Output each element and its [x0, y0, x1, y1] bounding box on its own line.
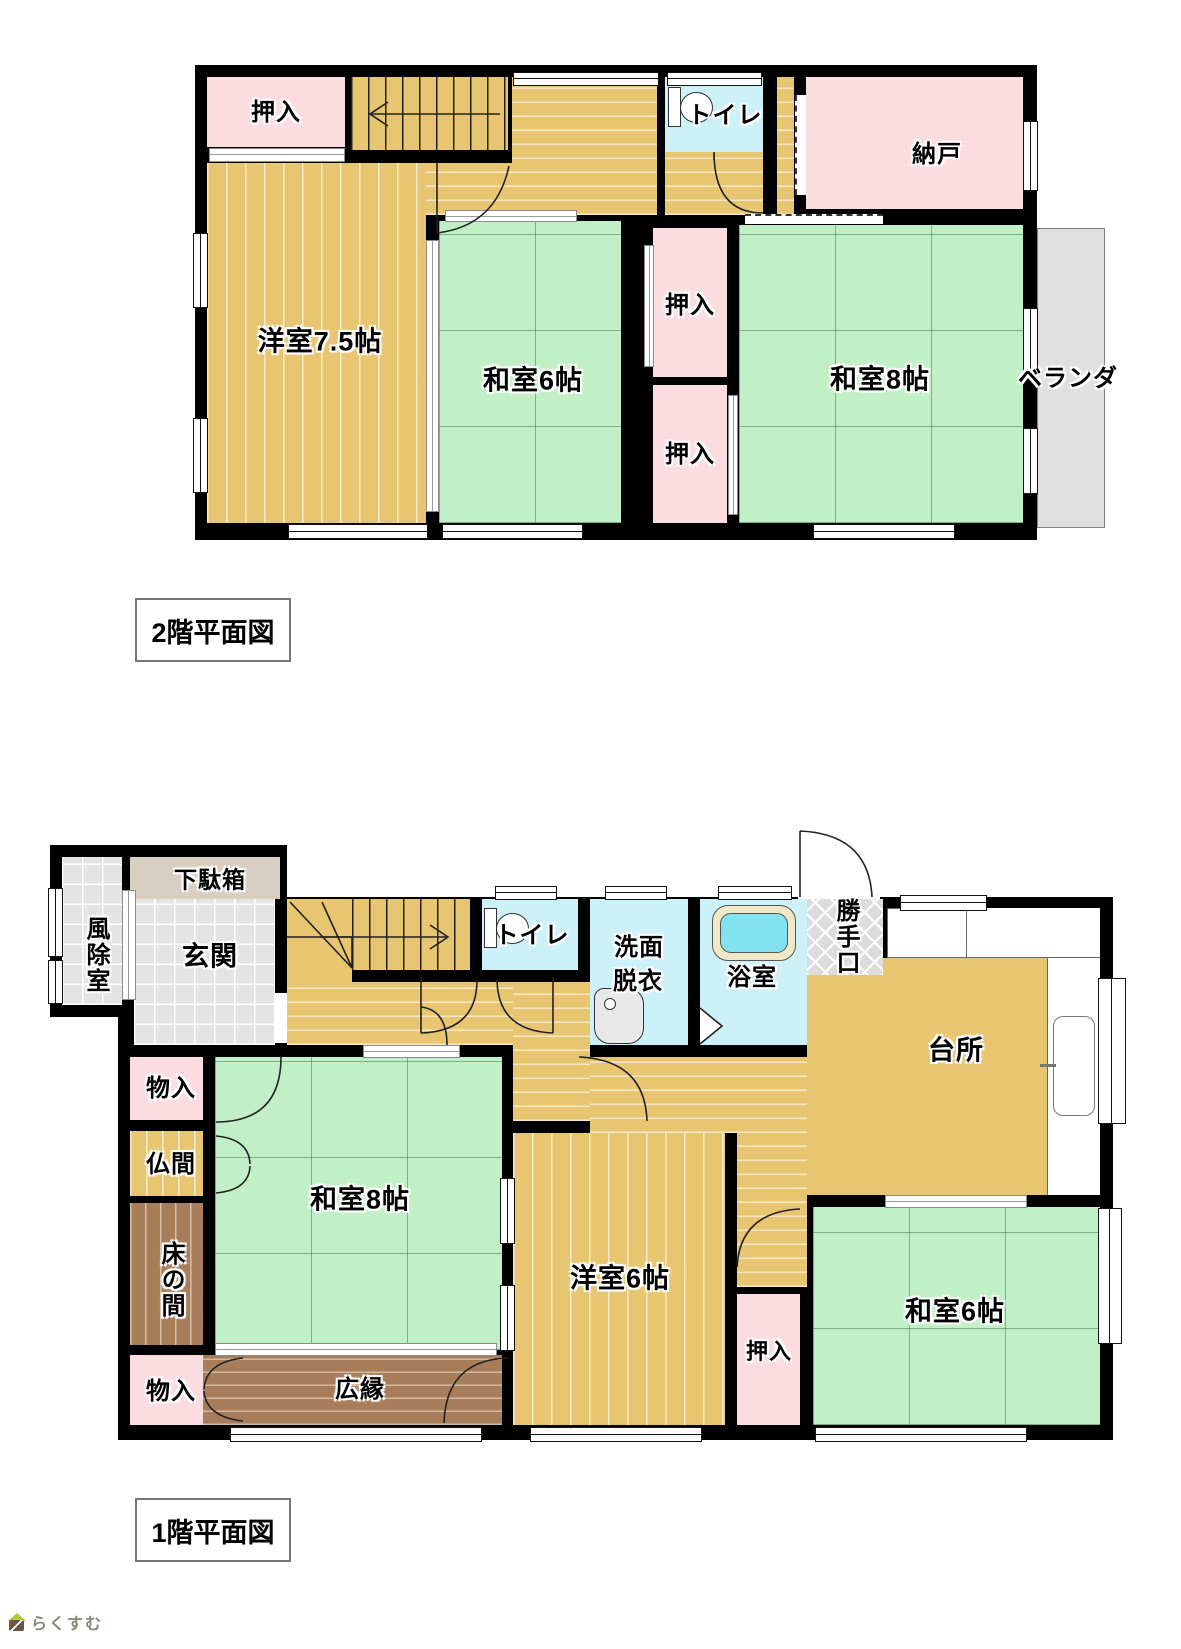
kitchen-white-top — [967, 908, 1100, 958]
rakusumu-logo: らくすむ — [8, 1610, 103, 1634]
floorplan-page: 押入 トイレ 納戸 洋室7.5帖 和室6帖 押入 押入 和室8帖 ベランダ 2階… — [0, 0, 1181, 1649]
room-label: 勝手口 — [833, 898, 857, 976]
room-label: 洋室7.5帖 — [258, 329, 383, 356]
stairs-2f — [351, 77, 508, 150]
window-senmen-top — [605, 886, 667, 900]
room-label: 物入 — [146, 1077, 196, 1101]
room-fill-daidokoro — [807, 975, 1047, 1195]
room-label: 玄関 — [182, 944, 238, 971]
slider-hiroen-top — [215, 1343, 497, 1356]
window-nando-right — [1023, 121, 1038, 191]
washbasin-drain-icon — [604, 998, 616, 1010]
opening-genkan-hall — [275, 993, 287, 1043]
door-dashed-nando — [795, 95, 806, 195]
window-kitchen-top — [900, 895, 987, 911]
slider-oshiire-mid-bottom — [728, 395, 738, 515]
room-label: 浴室 — [727, 966, 777, 990]
room-fill-daidokoro-strip — [883, 958, 1047, 975]
floor1-title-box: 1階平面図 — [135, 1498, 291, 1562]
room-label: 押入 — [746, 1341, 792, 1363]
room-fill-genkan — [134, 899, 275, 1045]
room-label: 洋室6帖 — [570, 1266, 670, 1293]
slider-washitsu8-top — [363, 1045, 460, 1058]
window-hiroen-bottom — [230, 1427, 482, 1442]
room-label: 納戸 — [912, 143, 962, 167]
floor1-title: 1階平面図 — [151, 1511, 274, 1550]
room-label: 和室8帖 — [830, 367, 930, 394]
bathtub-icon — [712, 905, 796, 961]
window-fujoshitsu-left-2 — [48, 960, 63, 1004]
room-label: トイレ — [688, 104, 763, 128]
hall-2f-c — [777, 77, 794, 215]
washbasin-icon — [594, 988, 644, 1044]
room-label: 押入 — [665, 294, 715, 318]
hall-1f-c — [590, 1057, 807, 1133]
window-2f-top-2 — [667, 72, 762, 86]
room-label: 和室8帖 — [310, 1187, 410, 1214]
window-toilet-1f-top — [495, 886, 557, 900]
window-2f-left-2 — [193, 418, 208, 493]
room-label: 洗面 — [614, 936, 664, 960]
window-washitsu8-right-2 — [1023, 428, 1038, 494]
partition-dashed-washitsu8-top — [745, 214, 883, 224]
window-2f-left-1 — [193, 233, 208, 308]
room-label: 風除室 — [83, 916, 107, 994]
stairs-1f-treads — [352, 899, 470, 970]
logo-text: らくすむ — [31, 1610, 103, 1634]
window-yoshitsu6-bottom — [530, 1427, 702, 1442]
floor2-title: 2階平面図 — [151, 611, 274, 650]
kitchen-counter-top — [887, 908, 967, 958]
room-label: 和室6帖 — [905, 1299, 1005, 1326]
room-label: 和室6帖 — [483, 368, 583, 395]
window-fujoshitsu-left-1 — [48, 888, 63, 957]
house-body-icon — [9, 1620, 24, 1631]
bathtub-inner — [720, 913, 788, 953]
kitchen-sink — [1053, 1016, 1095, 1116]
hall-1f-a — [287, 982, 513, 1045]
slider-oshiire-tl — [209, 148, 345, 162]
slider-oshiire-mid-top — [644, 245, 654, 367]
window-2f-bottom-2 — [442, 524, 583, 539]
room-label: 下駄箱 — [174, 869, 246, 892]
window-2f-bottom-1 — [288, 524, 428, 539]
hall-2f-a — [512, 77, 657, 215]
room-label: 脱衣 — [613, 970, 663, 994]
window-washitsu6-right — [1098, 1208, 1122, 1344]
hall-1f-b — [513, 982, 590, 1121]
window-washitsu6-bottom — [815, 1427, 1027, 1442]
window-2f-bottom-3 — [813, 524, 955, 539]
hall-2f-b — [665, 152, 763, 215]
room-label: 広縁 — [335, 1378, 385, 1402]
room-label: 仏間 — [146, 1153, 196, 1177]
room-label: ベランダ — [1018, 367, 1118, 391]
room-label: 物入 — [146, 1380, 196, 1404]
room-label: 台所 — [928, 1038, 984, 1065]
window-yokushitsu-top — [718, 886, 792, 900]
window-yoshitsu6-left-2 — [500, 1285, 515, 1351]
room-label: 押入 — [665, 443, 715, 467]
stairs-1f-winder — [287, 899, 352, 982]
slider-washitsu6-top — [445, 210, 577, 222]
kitchen-faucet — [1040, 1064, 1056, 1067]
slider-yoshitsu-washitsu — [426, 240, 439, 512]
window-yoshitsu6-left-1 — [500, 1178, 515, 1244]
room-label: 床の間 — [158, 1241, 182, 1319]
floor2-title-box: 2階平面図 — [135, 598, 291, 662]
hall-1f-corridor — [737, 1133, 807, 1287]
slider-washitsu6-top — [885, 1195, 1027, 1208]
room-label: トイレ — [495, 924, 570, 948]
house-icon — [8, 1613, 26, 1631]
room-label: 押入 — [251, 101, 301, 125]
slider-fujoshitsu-genkan — [122, 890, 136, 1000]
window-2f-top-1 — [513, 72, 659, 86]
window-kitchen-right — [1098, 978, 1126, 1124]
hall-2f-d — [426, 163, 512, 215]
